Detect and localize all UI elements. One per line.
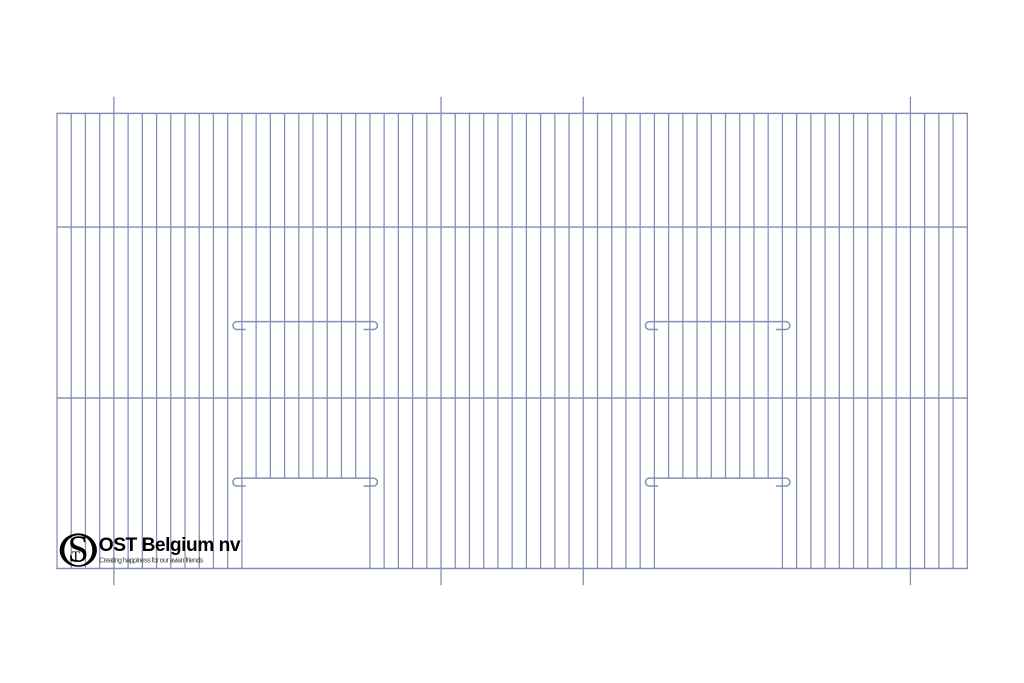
svg-text:T: T: [72, 549, 81, 564]
svg-text:OST Belgium nv: OST Belgium nv: [99, 535, 241, 556]
svg-text:Creating happiness for our avi: Creating happiness for our avian friends: [99, 557, 204, 565]
